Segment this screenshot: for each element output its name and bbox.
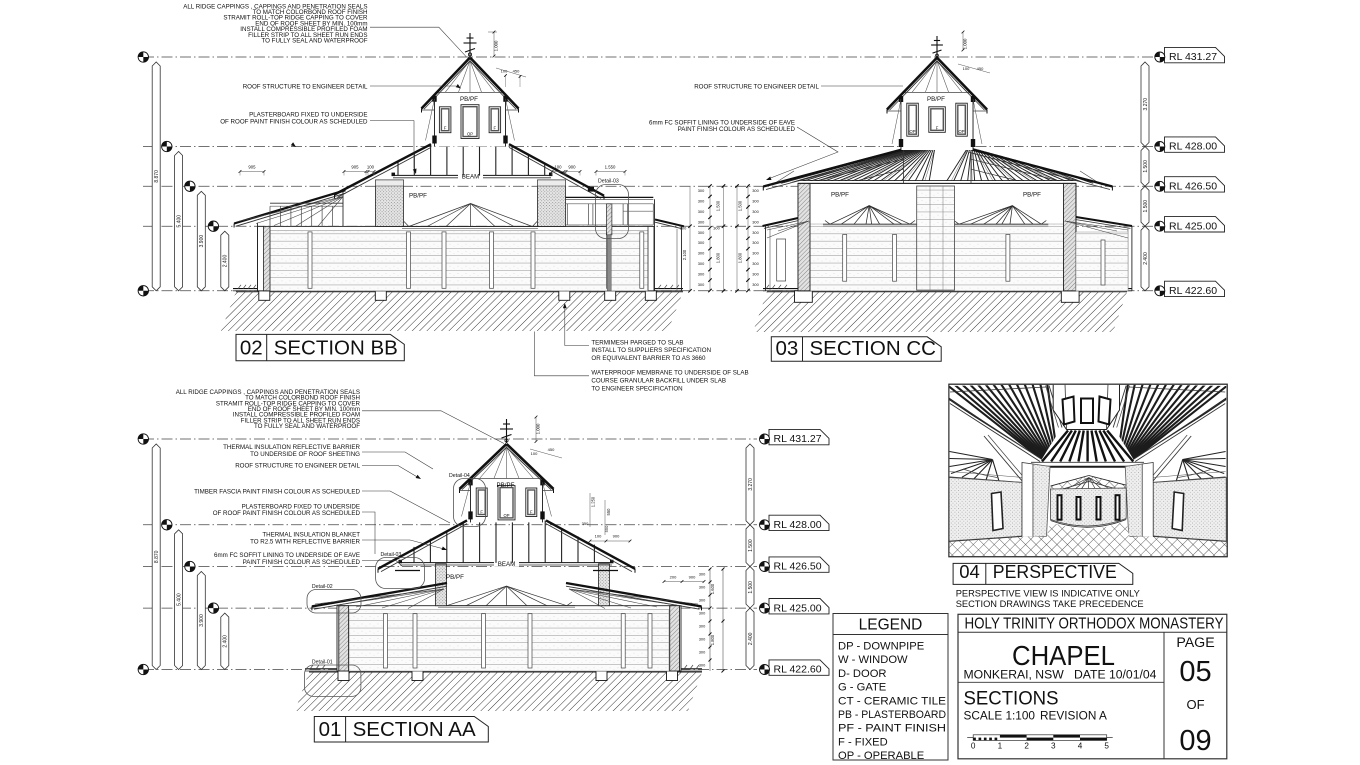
- svg-text:CHAPEL: CHAPEL: [1012, 640, 1115, 671]
- svg-text:MONKERAI, NSW: MONKERAI, NSW: [964, 668, 1065, 682]
- svg-text:PB/PF: PB/PF: [497, 482, 515, 489]
- svg-text:PAGE: PAGE: [1176, 635, 1214, 651]
- svg-text:OP: OP: [467, 132, 473, 137]
- svg-text:1.000: 1.000: [494, 40, 499, 51]
- svg-text:900: 900: [568, 165, 576, 170]
- svg-text:100: 100: [501, 69, 508, 74]
- svg-text:2.400: 2.400: [748, 632, 754, 645]
- svg-text:W - WINDOW: W - WINDOW: [838, 654, 908, 666]
- svg-text:RL 422.60: RL 422.60: [1169, 285, 1217, 297]
- svg-text:ROOF STRUCTURE TO ENGINEER DET: ROOF STRUCTURE TO ENGINEER DETAIL: [694, 83, 819, 90]
- svg-text:300: 300: [698, 219, 705, 224]
- svg-text:300: 300: [698, 240, 705, 245]
- svg-text:1.600: 1.600: [710, 583, 715, 594]
- svg-text:2.100: 2.100: [682, 249, 687, 260]
- svg-text:OF: OF: [1186, 697, 1204, 712]
- svg-text:PERSPECTIVE: PERSPECTIVE: [993, 561, 1117, 582]
- svg-text:D- DOOR: D- DOOR: [838, 668, 886, 680]
- svg-text:OP: OP: [909, 129, 915, 134]
- svg-text:TO R2.5 WITH REFLECTIVE BARRIE: TO R2.5 WITH REFLECTIVE BARRIER: [250, 538, 360, 545]
- svg-text:905: 905: [351, 165, 359, 170]
- svg-text:300: 300: [699, 637, 706, 642]
- svg-text:1.500: 1.500: [716, 200, 721, 211]
- svg-text:450: 450: [548, 447, 555, 452]
- svg-text:ROOF STRUCTURE TO ENGINEER DET: ROOF STRUCTURE TO ENGINEER DETAIL: [235, 463, 360, 470]
- svg-text:1.000: 1.000: [963, 38, 968, 49]
- svg-text:RL 425.00: RL 425.00: [774, 602, 822, 614]
- svg-text:RL 426.50: RL 426.50: [774, 561, 822, 573]
- svg-text:5: 5: [1104, 742, 1109, 751]
- svg-text:100: 100: [367, 165, 375, 170]
- svg-text:DATE 10/01/04: DATE 10/01/04: [1074, 668, 1157, 682]
- svg-text:100: 100: [963, 66, 970, 71]
- svg-text:300: 300: [752, 188, 759, 193]
- svg-text:350: 350: [582, 521, 589, 526]
- svg-text:PAINT FINISH COLOUR AS SCHEDUL: PAINT FINISH COLOUR AS SCHEDULED: [678, 126, 796, 133]
- svg-text:TO FULLY SEAL AND WATERPROOF: TO FULLY SEAL AND WATERPROOF: [254, 423, 360, 430]
- svg-text:2: 2: [1024, 742, 1029, 751]
- svg-text:300: 300: [698, 251, 705, 256]
- svg-text:HOLY TRINITY ORTHODOX MONASTER: HOLY TRINITY ORTHODOX MONASTERY: [965, 616, 1224, 633]
- svg-text:5.400: 5.400: [176, 215, 182, 228]
- svg-text:PB/PF: PB/PF: [409, 193, 427, 200]
- svg-text:300: 300: [698, 198, 705, 203]
- svg-text:900: 900: [689, 575, 696, 580]
- svg-text:F: F: [494, 126, 497, 131]
- svg-text:300: 300: [698, 282, 705, 287]
- svg-text:3: 3: [1051, 742, 1056, 751]
- svg-text:3.270: 3.270: [748, 478, 754, 491]
- svg-text:4: 4: [1078, 742, 1083, 751]
- svg-text:WATERPROOF MEMBRANE TO UNDERSI: WATERPROOF MEMBRANE TO UNDERSIDE OF SLAB: [591, 370, 748, 377]
- svg-text:300: 300: [699, 611, 706, 616]
- svg-text:PB/PF: PB/PF: [446, 574, 464, 581]
- svg-text:09: 09: [1179, 725, 1211, 757]
- svg-text:CT - CERAMIC TILE: CT - CERAMIC TILE: [838, 695, 946, 707]
- svg-text:TERMIMESH PARGED TO SLAB: TERMIMESH PARGED TO SLAB: [591, 339, 683, 346]
- svg-text:PB/PF: PB/PF: [831, 192, 849, 199]
- svg-text:F - FIXED: F - FIXED: [838, 736, 888, 748]
- svg-text:03: 03: [775, 337, 798, 360]
- svg-text:8.870: 8.870: [154, 170, 160, 183]
- svg-text:300: 300: [752, 251, 759, 256]
- svg-text:1.500: 1.500: [1143, 160, 1149, 173]
- svg-text:PAINT FINISH COLOUR AS SCHEDUL: PAINT FINISH COLOUR AS SCHEDULED: [243, 559, 361, 566]
- svg-text:300: 300: [698, 261, 705, 266]
- svg-text:1.550: 1.550: [605, 165, 616, 170]
- svg-text:PB/PF: PB/PF: [1023, 192, 1041, 199]
- svg-text:300: 300: [752, 272, 759, 277]
- svg-text:TO FULLY SEAL AND WATERPROOF: TO FULLY SEAL AND WATERPROOF: [261, 38, 367, 45]
- svg-text:01: 01: [319, 718, 342, 741]
- svg-text:0: 0: [971, 742, 976, 751]
- svg-text:200: 200: [670, 575, 677, 580]
- svg-text:300: 300: [699, 585, 706, 590]
- svg-text:SECTION DRAWINGS TAKE PRECEDEN: SECTION DRAWINGS TAKE PRECEDENCE: [956, 599, 1144, 609]
- svg-text:2.400: 2.400: [223, 635, 229, 648]
- svg-text:TIMBER FASCIA PAINT FINISH COL: TIMBER FASCIA PAINT FINISH COLOUR AS SCH…: [194, 488, 360, 495]
- svg-text:Detail-03: Detail-03: [598, 179, 619, 185]
- svg-text:RL 426.50: RL 426.50: [1169, 181, 1217, 193]
- svg-text:COURSE GRANULAR BACKFILL UNDER: COURSE GRANULAR BACKFILL UNDER SLAB: [591, 378, 726, 385]
- svg-text:2.400: 2.400: [223, 255, 229, 268]
- svg-text:REVISION A: REVISION A: [1040, 709, 1107, 723]
- svg-text:300: 300: [752, 209, 759, 214]
- svg-text:PF - PAINT FINISH: PF - PAINT FINISH: [838, 723, 946, 735]
- svg-text:3.900: 3.900: [199, 614, 205, 627]
- svg-text:ROOF STRUCTURE TO ENGINEER DET: ROOF STRUCTURE TO ENGINEER DETAIL: [243, 83, 368, 90]
- svg-text:RL 425.00: RL 425.00: [1169, 220, 1217, 232]
- svg-text:300: 300: [699, 598, 706, 603]
- svg-text:300: 300: [752, 198, 759, 203]
- svg-text:2.400: 2.400: [1143, 252, 1149, 265]
- svg-text:8.870: 8.870: [154, 550, 160, 563]
- svg-text:PB/PF: PB/PF: [927, 96, 945, 103]
- svg-text:RL 422.60: RL 422.60: [774, 664, 822, 676]
- svg-text:SECTIONS: SECTIONS: [964, 688, 1059, 710]
- svg-text:450: 450: [513, 69, 520, 74]
- svg-text:100: 100: [531, 451, 538, 456]
- svg-text:300: 300: [698, 209, 705, 214]
- svg-text:3.900: 3.900: [199, 235, 205, 248]
- svg-text:OP - OPERABLE: OP - OPERABLE: [838, 750, 924, 762]
- svg-text:1.500: 1.500: [738, 200, 743, 211]
- svg-text:300: 300: [752, 240, 759, 245]
- svg-text:F: F: [530, 510, 533, 515]
- svg-text:SCALE 1:100: SCALE 1:100: [964, 709, 1036, 723]
- svg-text:300: 300: [699, 624, 706, 629]
- svg-text:05: 05: [1179, 656, 1211, 688]
- svg-text:1.500: 1.500: [1143, 200, 1149, 213]
- svg-text:1.500: 1.500: [748, 539, 754, 552]
- svg-text:550: 550: [606, 508, 611, 516]
- svg-text:OF ROOF PAINT FINISH COLOUR AS: OF ROOF PAINT FINISH COLOUR AS SCHEDULED: [220, 118, 368, 125]
- svg-text:F: F: [936, 125, 939, 130]
- svg-text:1.800: 1.800: [716, 252, 721, 263]
- svg-text:RL 428.00: RL 428.00: [1169, 141, 1217, 153]
- svg-text:1.250: 1.250: [591, 496, 596, 507]
- svg-text:100: 100: [554, 165, 562, 170]
- svg-text:02: 02: [240, 337, 263, 360]
- svg-text:PB - PLASTERBOARD: PB - PLASTERBOARD: [838, 709, 946, 721]
- svg-text:3.270: 3.270: [1143, 98, 1149, 111]
- svg-text:1.800: 1.800: [710, 634, 715, 645]
- svg-text:300: 300: [699, 572, 706, 577]
- svg-text:DP - DOWNPIPE: DP - DOWNPIPE: [838, 641, 924, 653]
- svg-text:OP: OP: [958, 129, 964, 134]
- svg-text:300: 300: [698, 230, 705, 235]
- svg-text:1.500: 1.500: [748, 581, 754, 594]
- svg-text:1.800: 1.800: [738, 252, 743, 263]
- svg-text:TO ENGINEER SPECIFICATION: TO ENGINEER SPECIFICATION: [591, 385, 682, 392]
- svg-text:F: F: [480, 510, 483, 515]
- svg-text:PERSPECTIVE VIEW IS INDICATIVE: PERSPECTIVE VIEW IS INDICATIVE ONLY: [956, 589, 1140, 599]
- svg-text:905: 905: [248, 165, 256, 170]
- svg-text:RL 428.00: RL 428.00: [774, 519, 822, 531]
- svg-text:TO UNDERSIDE OF ROOF SHEETING: TO UNDERSIDE OF ROOF SHEETING: [250, 451, 360, 458]
- svg-text:100: 100: [595, 534, 602, 539]
- svg-text:OP: OP: [503, 513, 509, 518]
- svg-text:300: 300: [699, 663, 706, 668]
- svg-text:300: 300: [699, 650, 706, 655]
- svg-text:300: 300: [752, 230, 759, 235]
- svg-text:SECTION CC: SECTION CC: [810, 337, 937, 360]
- svg-text:900: 900: [613, 534, 620, 539]
- svg-text:SECTION AA: SECTION AA: [353, 718, 476, 741]
- svg-text:RL 431.27: RL 431.27: [1169, 51, 1217, 63]
- svg-text:RL 431.27: RL 431.27: [774, 433, 822, 445]
- svg-text:300: 300: [698, 272, 705, 277]
- svg-text:04: 04: [959, 561, 980, 582]
- svg-text:OF ROOF PAINT FINISH COLOUR AS: OF ROOF PAINT FINISH COLOUR AS SCHEDULED: [213, 510, 361, 517]
- svg-text:G - GATE: G - GATE: [838, 682, 886, 694]
- svg-text:300: 300: [752, 219, 759, 224]
- svg-text:1: 1: [998, 742, 1003, 751]
- svg-text:1.000: 1.000: [536, 423, 541, 434]
- svg-text:300: 300: [752, 261, 759, 266]
- svg-text:F: F: [444, 126, 447, 131]
- svg-text:Detail-02: Detail-02: [312, 584, 333, 590]
- svg-text:300: 300: [698, 188, 705, 193]
- svg-text:LEGEND: LEGEND: [859, 617, 923, 634]
- svg-text:300: 300: [713, 226, 720, 231]
- svg-text:PB/PF: PB/PF: [460, 96, 478, 103]
- svg-text:SECTION BB: SECTION BB: [274, 337, 398, 360]
- svg-text:300: 300: [752, 282, 759, 287]
- svg-text:INSTALL TO SUPPLIERS SPECIFICA: INSTALL TO SUPPLIERS SPECIFICATION: [591, 347, 711, 354]
- svg-text:OR EQUIVALENT BARRIER TO AS 36: OR EQUIVALENT BARRIER TO AS 3660: [591, 355, 706, 362]
- svg-text:BEAM: BEAM: [462, 174, 480, 181]
- svg-text:5.400: 5.400: [176, 593, 182, 606]
